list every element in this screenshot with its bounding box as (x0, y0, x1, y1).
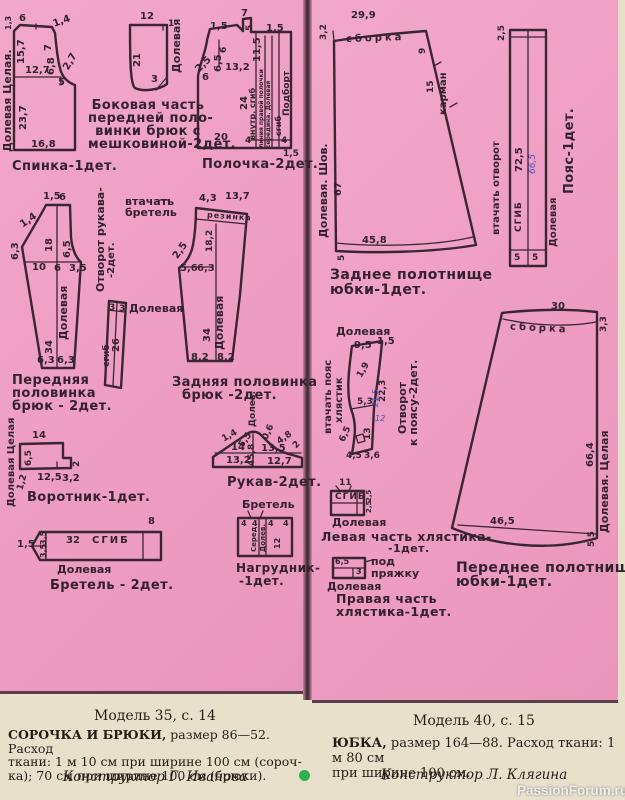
measurement: 3,5 (40, 544, 48, 558)
watermark: PassionForum.ru (517, 783, 625, 798)
measurement: 7 (44, 44, 54, 51)
measurement: 3,2 (62, 474, 80, 484)
measurement: 4 (281, 137, 287, 146)
grain-label: Долев. (260, 524, 267, 552)
measurement: 4,5 (346, 452, 362, 461)
piece-caption: Бретель - 2дет. (50, 579, 173, 592)
measurement: 14 (231, 443, 245, 453)
grain-label: Долевая (214, 296, 225, 350)
measurement: 11 (339, 479, 352, 488)
grain-label: Долевая (57, 564, 111, 575)
measurement: 2 (73, 461, 82, 467)
piece-caption: Пояс-1дет. (563, 108, 576, 194)
measurement: 32 (66, 536, 80, 546)
measurement: 5 (58, 78, 65, 88)
measurement: 4 (241, 520, 247, 528)
measurement: 6 (202, 73, 209, 83)
grain-label: Долевая (58, 286, 69, 340)
measurement: 13,2 (226, 456, 251, 466)
measurement: 4,3 (199, 194, 217, 204)
measurement: 72,5 (515, 147, 525, 172)
measurement: 26 (112, 338, 122, 352)
grain-label: Долевая (549, 198, 559, 247)
measurement: 6,5 (63, 240, 73, 258)
measurement: 13,5 (261, 444, 286, 454)
piece-caption: -1дет. (239, 575, 284, 587)
measurement: 12 (140, 12, 154, 22)
piece-strip-inner (108, 200, 169, 386)
measurement: 6 (220, 47, 229, 53)
measurement: 16,8 (31, 140, 56, 150)
handwritten-note: 66,5 (529, 154, 538, 174)
fold-label: сгиб (103, 344, 112, 367)
strap-label: Бретель (242, 499, 295, 510)
grain-label: Долевая. Целая (599, 430, 610, 533)
measurement: 18 (45, 238, 55, 252)
piece-perednee-outline (452, 310, 597, 546)
piece-perednee-inner (458, 319, 596, 534)
grain-label: Долевая (332, 517, 386, 528)
measurement: 6,3 (197, 264, 215, 274)
measurement: 4 (283, 520, 289, 528)
measurement: 67 (334, 182, 344, 196)
measurement: 8,2 (217, 353, 235, 363)
buckle-label: под (371, 556, 395, 567)
cuff-label: Отворот рукава- (95, 187, 106, 292)
grain-label: Долевая (171, 19, 182, 73)
cuff-label: -2дет. (107, 242, 117, 278)
insert-label: втачать пояс (324, 360, 334, 434)
measurement: 34 (203, 328, 213, 342)
measurement: 6 (19, 14, 26, 24)
handwritten-note: 21,5 (372, 389, 380, 407)
measurement: 10 (32, 263, 46, 273)
measurement: 3 (151, 75, 158, 85)
measurement: 1,5 (377, 337, 395, 347)
buckle-label: пряжку (371, 568, 419, 579)
measurement: 6,5 (214, 54, 224, 72)
measurement: 45,8 (362, 236, 387, 246)
measurement: 8 (148, 517, 155, 527)
piece-caption: брюк - 2дет. (12, 400, 112, 413)
piece-zadnee-outline (334, 31, 476, 252)
measurement: 9,5 (354, 341, 372, 351)
insert-strap-label: бретель (125, 207, 177, 218)
measurement: 3,6 (364, 452, 380, 461)
measurement: 5 (514, 254, 520, 263)
measurement: 30 (551, 302, 565, 312)
measurement: 1,5 (266, 24, 284, 34)
measurement: 8,2 (191, 353, 209, 363)
measurement: 3,5 (69, 264, 87, 274)
fold-label: внутр. сгиб (249, 88, 257, 140)
insert-label: хлястик (335, 377, 345, 423)
piece-caption: юбки-1дет. (330, 283, 426, 297)
piece-caption: мешковиной-2дет. (88, 138, 208, 151)
measurement: 6,5 (25, 450, 34, 466)
scanned-pattern-page: 1,3 6 1,4 15,7 7 6,8 2,7 12,7 5 23,7 16,… (0, 0, 625, 800)
measurement: 12,7 (25, 66, 50, 76)
measurement: 5,5 (588, 531, 597, 547)
fabric-info-left: ткани: 1 м 10 см при ширине 100 см (соро… (8, 755, 302, 769)
piece-caption: Полочка-2дет. (202, 158, 318, 171)
center-label: Серед. (251, 524, 258, 552)
measurement: 6 (59, 193, 66, 203)
grain-label: Долевая. Шов. (318, 143, 329, 238)
designer-left: Конструктор Г. Иванова (10, 769, 300, 785)
measurement: 12 (274, 538, 282, 549)
measurement: 3,3 (600, 316, 609, 332)
measurement: 13,7 (225, 192, 250, 202)
fold-label: СГИБ (335, 493, 366, 502)
measurement: 6,5 (335, 558, 349, 566)
piece-caption: -1дет. (388, 543, 430, 554)
measurement: 3,2 (320, 24, 329, 40)
grain-label: Долевая (129, 303, 183, 314)
model-title-left: Модель 35, с. 14 (10, 708, 300, 724)
piece-caption: Нагрудник- (236, 562, 320, 574)
measurement: 5 (532, 254, 538, 263)
measurement: 6,3 (11, 242, 21, 260)
measurement: 6 (54, 264, 61, 274)
measurement: 1,5 (17, 540, 35, 550)
measurement: 23,7 (19, 105, 29, 130)
measurement: 18,2 (206, 230, 215, 252)
fold-label: СГИБ (515, 201, 524, 232)
measurement: 5,3 (357, 398, 373, 407)
gather-label: сборка (346, 33, 405, 45)
measurement: 5 (246, 25, 255, 31)
piece-caption: к поясу-2дет. (408, 360, 419, 446)
measurement: 20 (214, 133, 228, 143)
fold-label: сгиб (275, 116, 283, 136)
measurement: 12,7 (267, 457, 292, 467)
measurement: 3 (119, 305, 125, 314)
green-dot (299, 770, 310, 781)
measurement: 46,5 (490, 517, 515, 527)
measurement: 34 (45, 340, 55, 354)
piece-caption: хлястика-1дет. (336, 606, 452, 619)
measurement: 21 (133, 53, 143, 67)
facing-label: Подборт (283, 71, 292, 116)
garment-name-right: ЮБКА, (332, 736, 387, 751)
measurement: 29,9 (351, 11, 376, 21)
measurement: 2,5 (498, 25, 507, 41)
measurement: 66,4 (586, 442, 596, 467)
measurement: 22,3 (379, 380, 388, 402)
handwritten-note: 12 (375, 415, 385, 423)
piece-caption: Рукав-2дет. (227, 476, 321, 489)
model-title-right: Модель 40, с. 15 (330, 713, 618, 729)
designer-right: Конструктор Л. Клягина (330, 767, 618, 783)
grain-label: Долев. (249, 391, 258, 427)
measurement: 14 (32, 431, 46, 441)
piece-caption: юбки-1дет. (456, 575, 552, 589)
measurement: 1,3 (5, 16, 13, 30)
grain-label: Долевая Целая. (2, 49, 13, 152)
measurement: 4 (268, 520, 274, 528)
measurement: 7 (241, 9, 248, 19)
measurement: 15 (427, 80, 436, 93)
piece-caption: Спинка-1дет. (12, 160, 117, 173)
measurement: 3 (109, 304, 115, 313)
measurement: 13 (364, 427, 373, 440)
measurement: 2,5 (366, 501, 373, 513)
measurement: 12,5 (37, 473, 62, 483)
measurement: 13,2 (225, 63, 250, 73)
pocket-label: карман (439, 72, 449, 115)
center-label: середина. Долевая (266, 81, 272, 148)
measurement: 11,5 (253, 37, 263, 62)
measurement: 6,3 (57, 356, 75, 366)
fold-label: СГИБ (92, 536, 130, 546)
piece-caption: Заднее полотнище (330, 268, 492, 282)
piece-caption: Переднее полотнище (456, 561, 625, 575)
measurement: 5 (338, 255, 347, 261)
measurement: 9 (419, 48, 428, 54)
measurement: 4 (245, 137, 251, 146)
measurement: 5,6 (180, 264, 198, 274)
measurement: 1,5 (210, 22, 228, 32)
measurement: 3 (356, 568, 362, 576)
insert-label: втачать отворот (492, 141, 502, 235)
piece-caption: Воротник-1дет. (27, 491, 150, 504)
measurement: 6,3 (37, 356, 55, 366)
measurement: 15,7 (17, 39, 27, 64)
grain-label: Долевая Целая (7, 418, 17, 507)
piece-caption: брюк -2дет. (182, 389, 277, 402)
